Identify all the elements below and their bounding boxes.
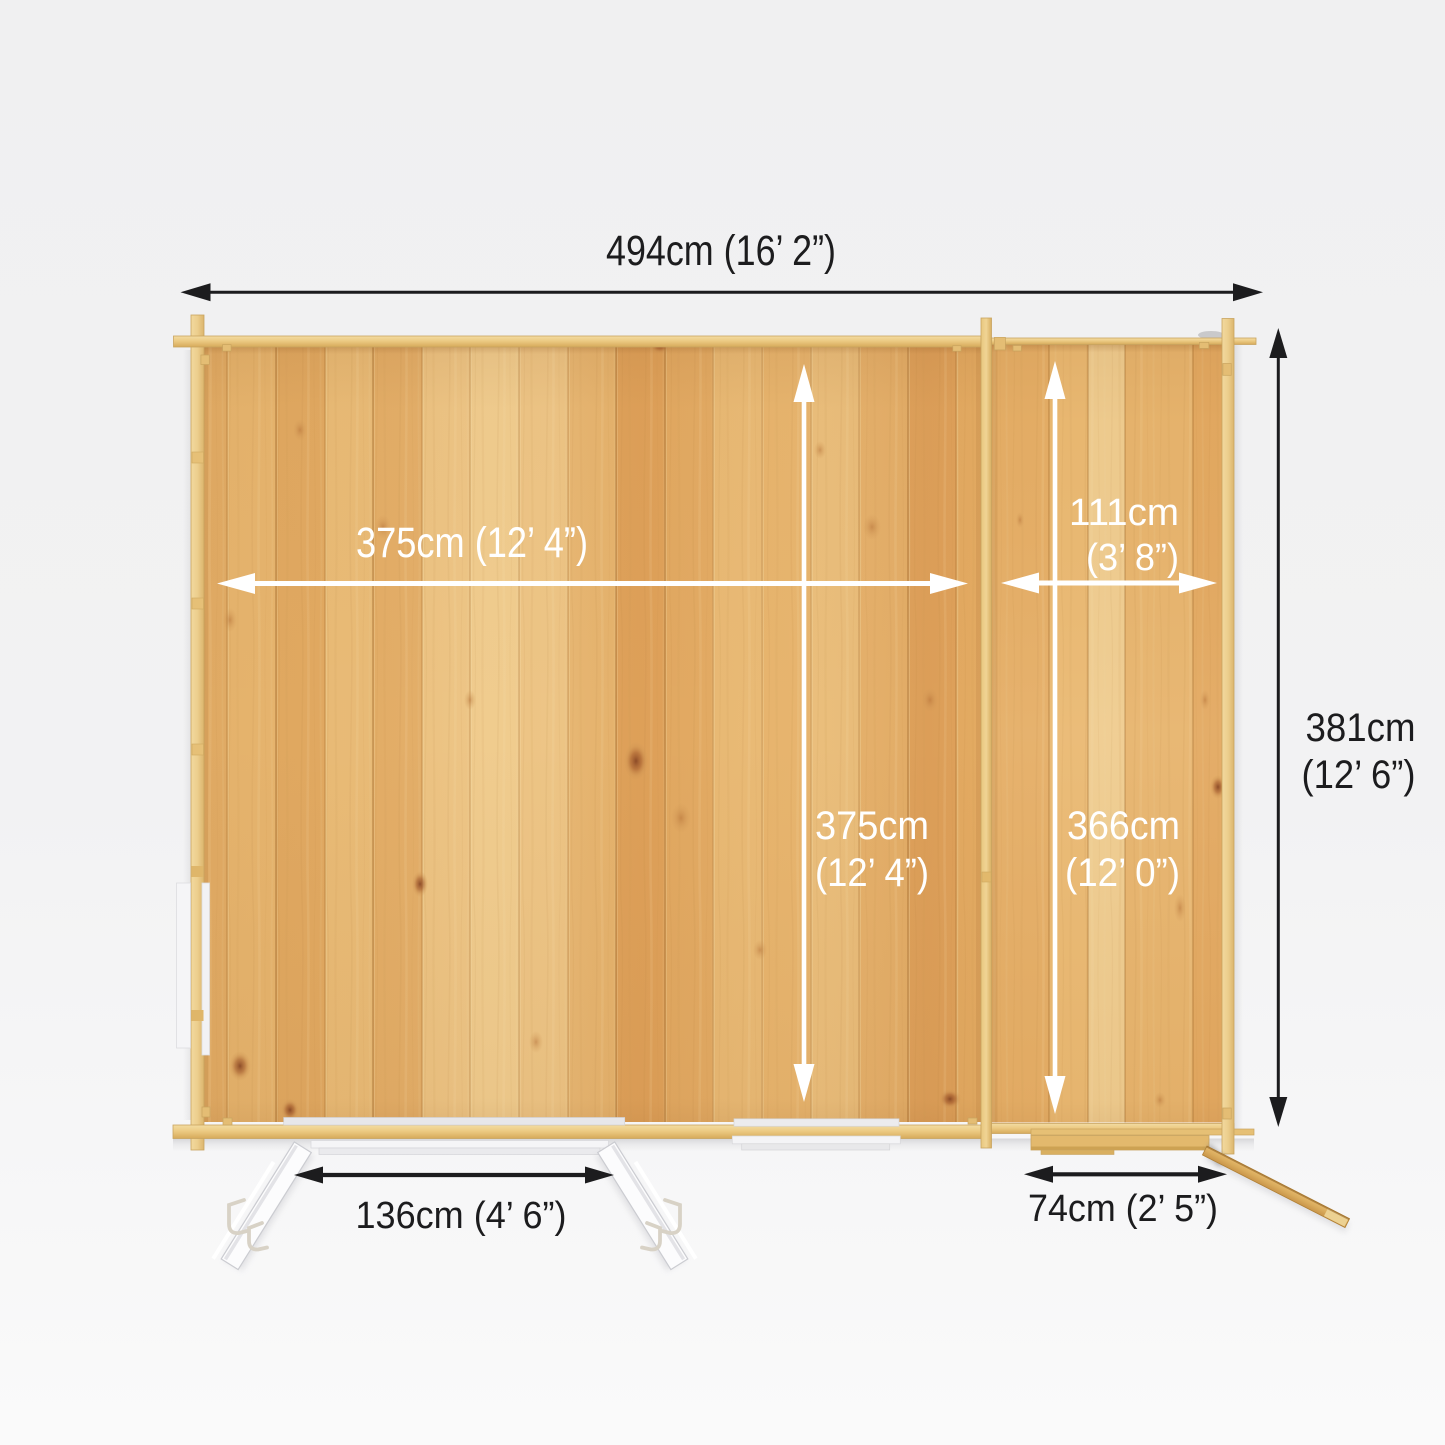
svg-text:74cm (2’ 5”): 74cm (2’ 5”) xyxy=(1028,1188,1218,1230)
svg-text:(12’ 6”): (12’ 6”) xyxy=(1302,753,1416,797)
svg-text:375cm (12’ 4”): 375cm (12’ 4”) xyxy=(356,519,588,567)
svg-text:136cm (4’ 6”): 136cm (4’ 6”) xyxy=(356,1195,567,1237)
svg-text:(3’ 8”): (3’ 8”) xyxy=(1086,537,1179,579)
svg-text:111cm: 111cm xyxy=(1069,492,1179,534)
svg-text:494cm (16’ 2”): 494cm (16’ 2”) xyxy=(606,227,836,275)
svg-text:381cm: 381cm xyxy=(1306,706,1416,750)
svg-text:(12’ 4”): (12’ 4”) xyxy=(815,851,929,895)
svg-text:375cm: 375cm xyxy=(815,804,929,848)
svg-text:(12’ 0”): (12’ 0”) xyxy=(1065,851,1180,895)
svg-text:366cm: 366cm xyxy=(1067,804,1180,848)
